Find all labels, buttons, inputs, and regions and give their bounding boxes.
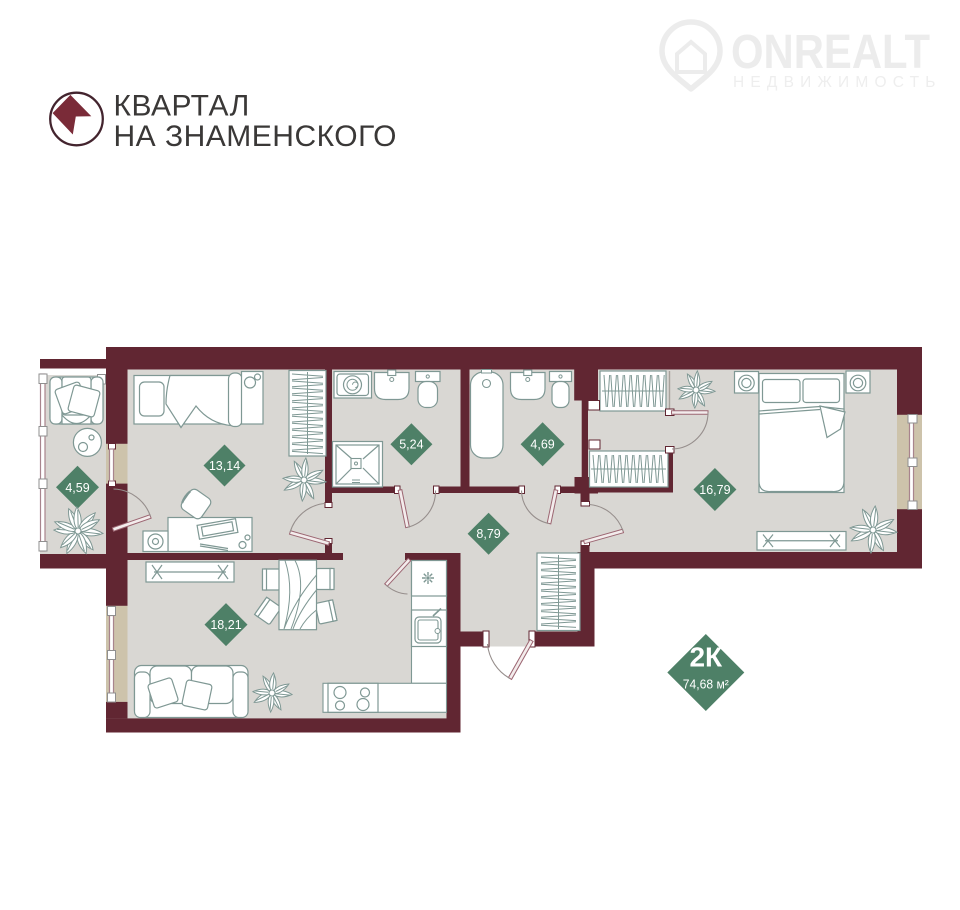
svg-text:КВАРТАЛ: КВАРТАЛ (114, 90, 250, 123)
svg-text:НЕДВИЖИМОСТЬ: НЕДВИЖИМОСТЬ (733, 74, 942, 91)
svg-text:13,14: 13,14 (209, 459, 240, 473)
svg-text:ONREALT: ONREALT (731, 26, 930, 79)
svg-text:2К: 2К (689, 642, 723, 673)
svg-text:4,69: 4,69 (530, 438, 554, 452)
svg-text:16,79: 16,79 (699, 483, 730, 497)
svg-text:8,79: 8,79 (476, 527, 500, 541)
svg-text:5,24: 5,24 (399, 438, 423, 452)
svg-text:4,59: 4,59 (65, 481, 89, 495)
svg-text:74,68 м²: 74,68 м² (683, 678, 729, 692)
svg-text:18,21: 18,21 (210, 618, 241, 632)
svg-text:НА ЗНАМЕНСКОГО: НА ЗНАМЕНСКОГО (114, 120, 398, 153)
